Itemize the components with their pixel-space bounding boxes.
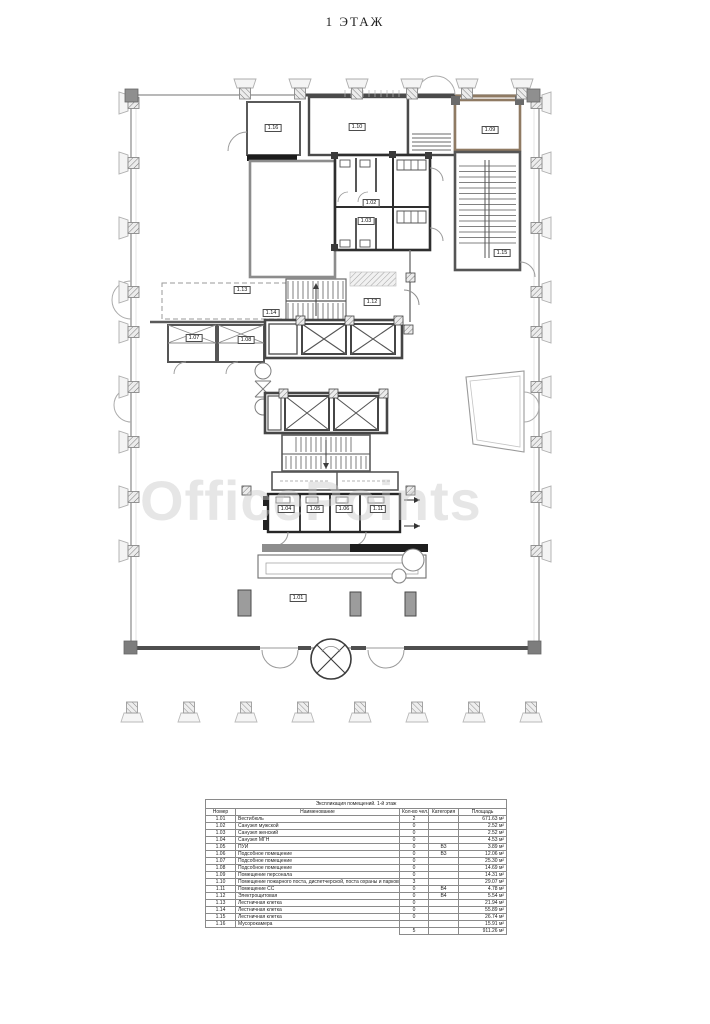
elevator-bank-lower: [265, 389, 388, 433]
door-arc: [524, 392, 539, 422]
room-schedule: Экспликация помещений. 1-й этаж НомерНаи…: [205, 799, 506, 935]
door-arc: [262, 650, 298, 668]
table-cell: 1.13: [206, 900, 236, 907]
room-1-16: [228, 102, 300, 161]
table-cell: [429, 816, 459, 823]
table-cell: 1.08: [206, 865, 236, 872]
table-cell: 1.03: [206, 830, 236, 837]
table-cell: 671.63 м²: [459, 816, 507, 823]
table-cell: [429, 928, 459, 935]
table-cell: [429, 921, 459, 928]
table-cell: В3: [429, 851, 459, 858]
table-cell: 911.26 м²: [459, 928, 507, 935]
table-cell: Подсобное помещение: [236, 851, 400, 858]
table-cell: 1.07: [206, 858, 236, 865]
service-cells: [263, 472, 420, 546]
table-row: 1.01Вестибюль2671.63 м²: [206, 816, 507, 823]
table-cell: 12.06 м²: [459, 851, 507, 858]
table-cell: Помещение пожарного поста, диспетчерской…: [236, 879, 400, 886]
table-header-row: НомерНаименованиеКол-во чел.КатегорияПло…: [206, 809, 507, 816]
table-cell: [429, 907, 459, 914]
rooms-1-07-1-08: [168, 325, 264, 374]
right-ramp: [466, 371, 539, 452]
table-cell: [429, 900, 459, 907]
table-cell: 1.16: [206, 921, 236, 928]
table-cell: 0: [400, 893, 429, 900]
door-arc: [228, 132, 247, 151]
stair-lower-middle: [282, 435, 370, 471]
table-cell: Подсобное помещение: [236, 858, 400, 865]
door-arc: [404, 290, 419, 305]
table-cell: 4.78 м²: [459, 886, 507, 893]
table-cell: 2.52 м²: [459, 823, 507, 830]
table-cell: 14.31 м²: [459, 872, 507, 879]
table-cell: [429, 865, 459, 872]
reception-desk: [258, 544, 428, 583]
table-cell: 26.74 м²: [459, 914, 507, 921]
table-cell: 1.15: [206, 914, 236, 921]
table-cell: 0: [400, 858, 429, 865]
table-cell: 0: [400, 830, 429, 837]
door-arc: [436, 76, 455, 95]
main-entrance: [262, 639, 404, 679]
table-cell: 1.06: [206, 851, 236, 858]
table-cell: 0: [400, 823, 429, 830]
table-cell: [429, 830, 459, 837]
table-cell: [429, 837, 459, 844]
table-cell: Лестничная клетка: [236, 907, 400, 914]
door-arc: [368, 650, 404, 668]
table-cell: 2.52 м²: [459, 830, 507, 837]
door-arc: [520, 262, 535, 277]
table-cell: 1.10: [206, 879, 236, 886]
column-header: Площадь: [459, 809, 507, 816]
table-cell: В4: [429, 886, 459, 893]
table-cell: 4.53 м²: [459, 837, 507, 844]
table-row: 1.03Санузел женский02.52 м²: [206, 830, 507, 837]
table-cell: В4: [429, 893, 459, 900]
table-cell: 0: [400, 900, 429, 907]
table-cell: 55.89 м²: [459, 907, 507, 914]
table-cell: [429, 858, 459, 865]
lobby-columns: [238, 590, 416, 616]
table-cell: [400, 921, 429, 928]
table-cell: 1.14: [206, 907, 236, 914]
table-cell: В3: [429, 844, 459, 851]
table-cell: 5.54 м²: [459, 893, 507, 900]
table-cell: 25.30 м²: [459, 858, 507, 865]
table-cell: Вестибюль: [236, 816, 400, 823]
table-cell: 14.69 м²: [459, 865, 507, 872]
table-cell: 21.94 м²: [459, 900, 507, 907]
table-row: 1.06Подсобное помещение0В312.06 м²: [206, 851, 507, 858]
table-cell: [429, 872, 459, 879]
table-cell: Помещение персонала: [236, 872, 400, 879]
table-cell: Лестничная клетка: [236, 900, 400, 907]
table-cell: 5: [400, 928, 429, 935]
table-row: 1.14Лестничная клетка055.89 м²: [206, 907, 507, 914]
table-row: 1.09Помещение персонала014.31 м²: [206, 872, 507, 879]
table-cell: 0: [400, 837, 429, 844]
table-cell: 0: [400, 914, 429, 921]
door-arc: [274, 532, 366, 546]
table-row: 1.04Санузел МГН04.53 м²: [206, 837, 507, 844]
table-cell: 1.12: [206, 893, 236, 900]
table-cell: Санузел женский: [236, 830, 400, 837]
planter: [402, 549, 424, 571]
stair-upper-middle: [286, 279, 346, 322]
door-arc: [174, 362, 238, 374]
table-cell: Санузел мужской: [236, 823, 400, 830]
table-cell: Подсобное помещение: [236, 865, 400, 872]
column-header: Кол-во чел.: [400, 809, 429, 816]
drawing-sheet: 1 ЭТАЖ: [0, 0, 710, 1024]
footing-symbols-row: [121, 702, 542, 722]
table-cell: 2: [400, 816, 429, 823]
table-cell: 0: [400, 865, 429, 872]
table-cell: 1.05: [206, 844, 236, 851]
table-cell: [206, 928, 400, 935]
table-cell: Электрощитовая: [236, 893, 400, 900]
table-cell: 15.91 м²: [459, 921, 507, 928]
table-row: 1.02Санузел мужской02.52 м²: [206, 823, 507, 830]
planter: [392, 569, 406, 583]
room-1-10: [309, 90, 408, 155]
table-cell: 1.01: [206, 816, 236, 823]
table-cell: 0: [400, 872, 429, 879]
table-row: 1.10Помещение пожарного поста, диспетчер…: [206, 879, 507, 886]
column-header: Категория: [429, 809, 459, 816]
column-header: Номер: [206, 809, 236, 816]
table-cell: 0: [400, 907, 429, 914]
table-cell: 0: [400, 844, 429, 851]
table-cell: Мусорокамера: [236, 921, 400, 928]
table-row: 1.16Мусорокамера15.91 м²: [206, 921, 507, 928]
table-cell: Помещение СС: [236, 886, 400, 893]
table-cell: 0: [400, 886, 429, 893]
column-header: Наименование: [236, 809, 400, 816]
table-cell: ПУИ: [236, 844, 400, 851]
stairwell-1-15: [455, 152, 535, 277]
table-total-row: 5911.26 м²: [206, 928, 507, 935]
room-1-09: [451, 96, 524, 150]
table-cell: 0: [400, 851, 429, 858]
table-cell: Лестничная клетка: [236, 914, 400, 921]
table-cell: 1.04: [206, 837, 236, 844]
table-row: 1.13Лестничная клетка021.94 м²: [206, 900, 507, 907]
table-cell: [429, 823, 459, 830]
table-cell: Санузел МГН: [236, 837, 400, 844]
table-row: 1.05ПУИ0В33.89 м²: [206, 844, 507, 851]
room-1-14-hall: [250, 161, 335, 277]
table-cell: 1.11: [206, 886, 236, 893]
table-cell: 3: [400, 879, 429, 886]
wc-block: [331, 151, 443, 251]
table-cell: 1.09: [206, 872, 236, 879]
door-arc: [430, 168, 443, 241]
table-cell: 3.89 м²: [459, 844, 507, 851]
table-row: 1.12Электрощитовая0В45.54 м²: [206, 893, 507, 900]
table-row: 1.07Подсобное помещение025.30 м²: [206, 858, 507, 865]
elevator-bank-upper: [265, 316, 403, 358]
table-title: Экспликация помещений. 1-й этаж: [206, 800, 507, 809]
room-schedule-table: Экспликация помещений. 1-й этаж НомерНаи…: [205, 799, 507, 935]
table-cell: 1.02: [206, 823, 236, 830]
table-cell: [429, 914, 459, 921]
table-cell: [429, 879, 459, 886]
table-row: 1.08Подсобное помещение014.69 м²: [206, 865, 507, 872]
table-row: 1.11Помещение СС0В44.78 м²: [206, 886, 507, 893]
table-row: 1.15Лестничная клетка026.74 м²: [206, 914, 507, 921]
table-cell: 29.07 м²: [459, 879, 507, 886]
